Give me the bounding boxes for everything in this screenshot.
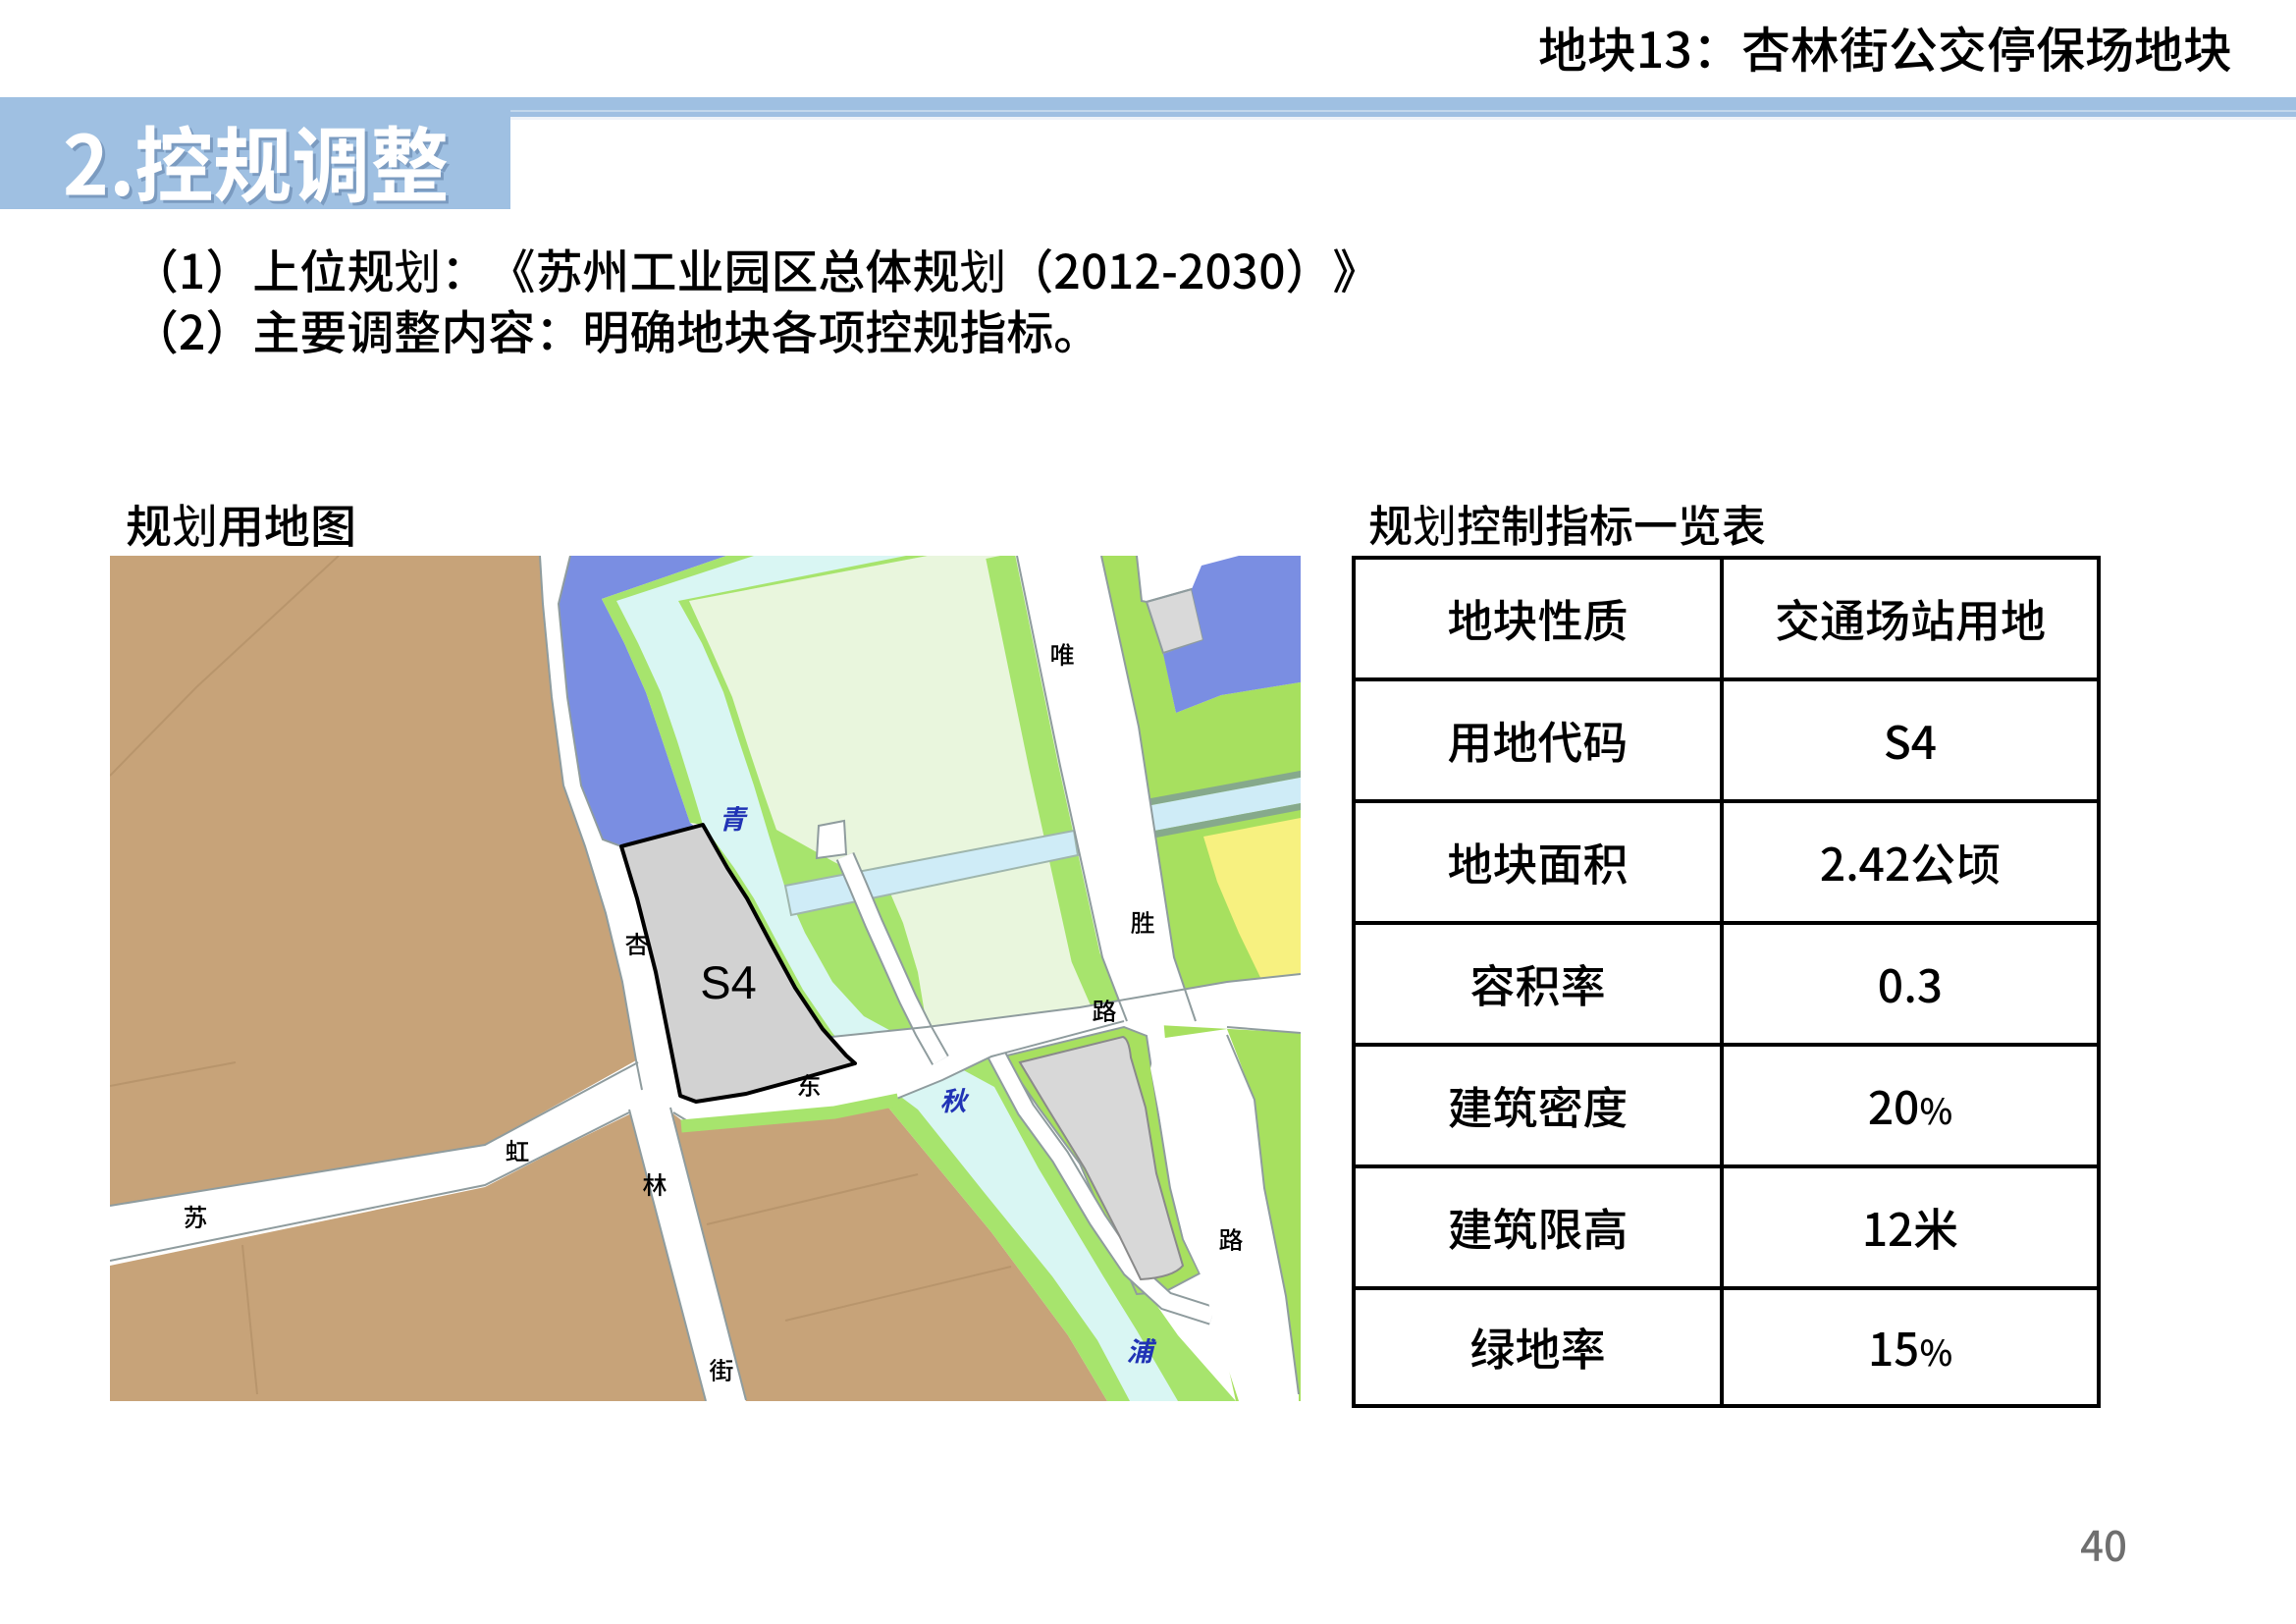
- svg-text:唯: 唯: [1049, 636, 1074, 672]
- svg-text:苏: 苏: [183, 1199, 207, 1234]
- svg-text:S4: S4: [700, 956, 757, 1008]
- svg-text:浦: 浦: [1127, 1330, 1157, 1369]
- svg-text:东: 东: [796, 1067, 821, 1103]
- svg-text:杏: 杏: [624, 926, 649, 961]
- svg-text:街: 街: [709, 1352, 733, 1387]
- svg-text:路: 路: [1092, 993, 1116, 1028]
- svg-text:林: 林: [642, 1166, 667, 1202]
- svg-text:胜: 胜: [1130, 904, 1154, 940]
- svg-text:虹: 虹: [505, 1133, 529, 1168]
- svg-text:路: 路: [1218, 1221, 1243, 1257]
- svg-text:青: 青: [720, 798, 749, 837]
- svg-text:秋: 秋: [940, 1080, 971, 1118]
